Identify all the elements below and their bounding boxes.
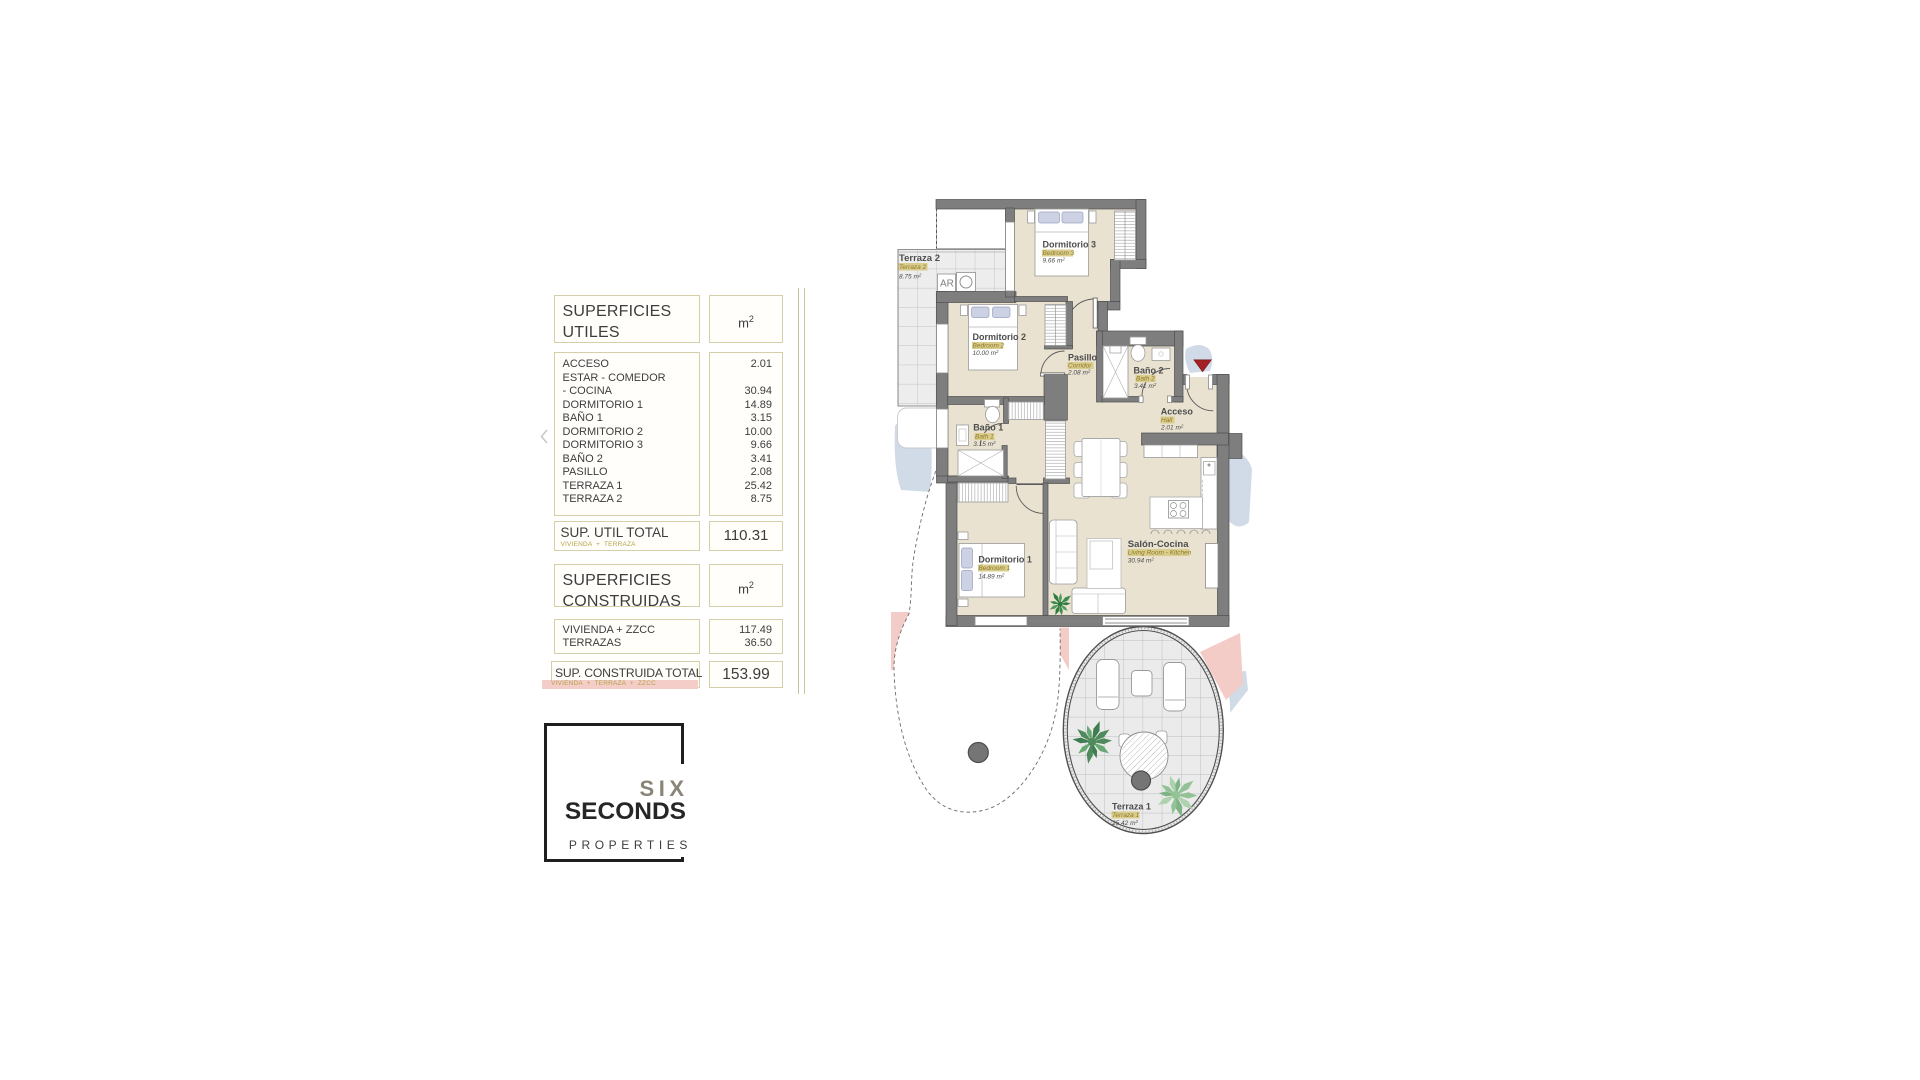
svg-text:2.08 m2: 2.08 m2 [1067, 369, 1091, 377]
svg-text:Bedroom 3: Bedroom 3 [1043, 250, 1075, 257]
svg-text:Bedroom 1: Bedroom 1 [978, 565, 1010, 572]
svg-text:Dormitorio 3: Dormitorio 3 [1043, 240, 1097, 250]
svg-text:Terraza 2: Terraza 2 [899, 264, 927, 271]
svg-text:Acceso: Acceso [1161, 407, 1194, 417]
svg-text:Dormitorio 1: Dormitorio 1 [978, 555, 1032, 565]
svg-text:Terraza 2: Terraza 2 [899, 253, 940, 264]
svg-text:14.89 m2: 14.89 m2 [978, 573, 1005, 581]
svg-text:10.00 m2: 10.00 m2 [973, 349, 1000, 357]
svg-text:9.66 m2: 9.66 m2 [1043, 257, 1066, 265]
svg-text:3.15 m2: 3.15 m2 [973, 440, 996, 448]
svg-text:Bath 2: Bath 2 [1136, 376, 1155, 383]
svg-text:Dormitorio 2: Dormitorio 2 [973, 332, 1027, 342]
svg-text:Salón-Cocina: Salón-Cocina [1128, 539, 1189, 550]
svg-text:2.01 m2: 2.01 m2 [1160, 424, 1184, 432]
svg-text:25.42 m2: 25.42 m2 [1111, 819, 1139, 827]
svg-text:30.94 m2: 30.94 m2 [1128, 557, 1155, 565]
svg-text:Baño 2: Baño 2 [1134, 366, 1164, 376]
svg-text:Bedroom 2: Bedroom 2 [973, 343, 1005, 350]
svg-text:8.75 m2: 8.75 m2 [899, 273, 922, 281]
svg-text:Bath 1: Bath 1 [975, 434, 994, 441]
svg-text:AR: AR [940, 279, 954, 290]
svg-text:3.41 m2: 3.41 m2 [1134, 382, 1157, 390]
svg-text:Pasillo: Pasillo [1068, 353, 1098, 363]
svg-text:Hall: Hall [1161, 417, 1173, 424]
svg-text:Terraza 1: Terraza 1 [1112, 802, 1151, 812]
svg-text:Baño 1: Baño 1 [973, 423, 1003, 433]
svg-text:Living Room - Kitchen: Living Room - Kitchen [1128, 550, 1192, 557]
